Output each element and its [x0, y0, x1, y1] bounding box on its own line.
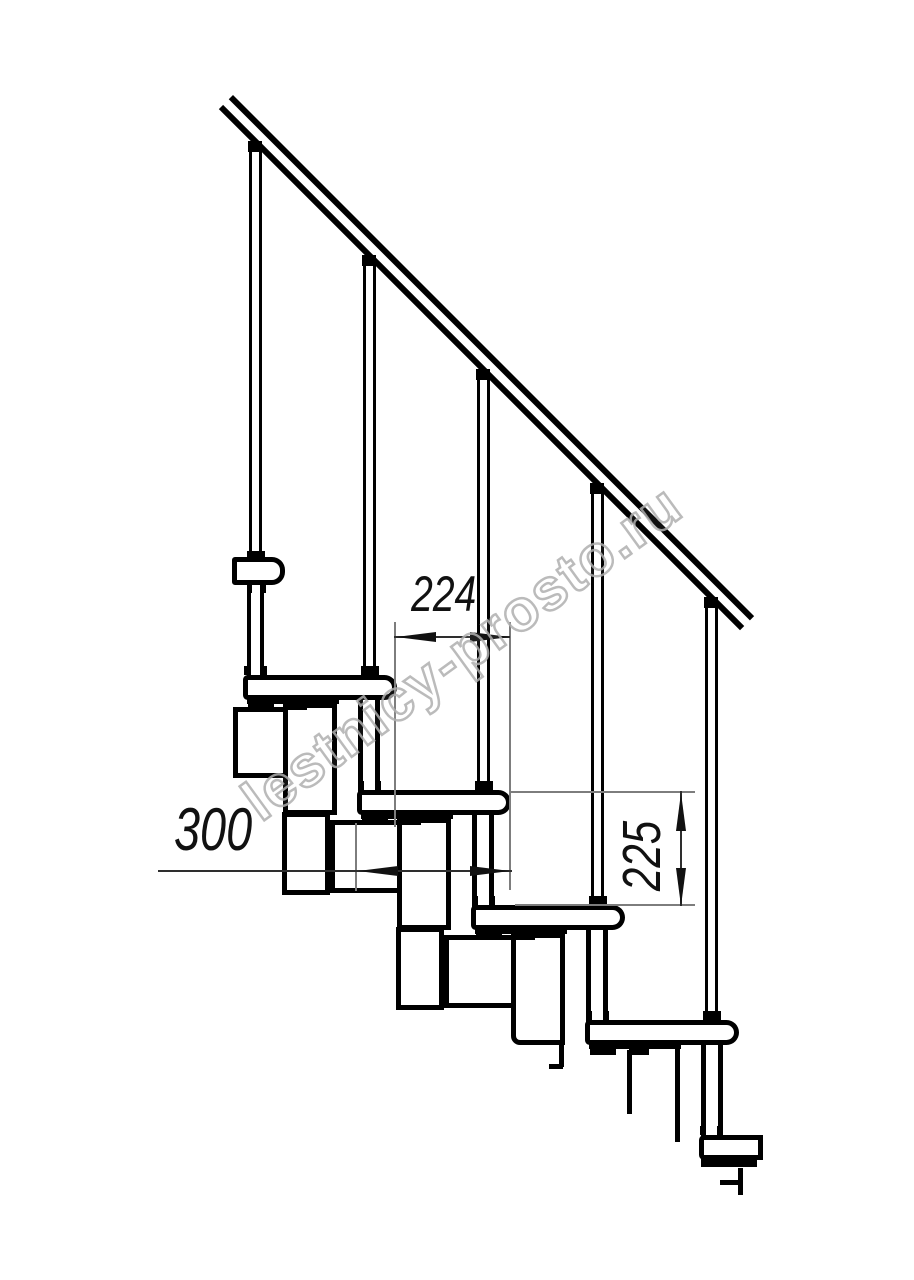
- module-cut-line: [549, 1064, 563, 1069]
- dimension-arrow-right: [470, 866, 510, 876]
- module-box: [511, 933, 565, 1045]
- baluster-cap: [476, 369, 490, 380]
- tread-mount: [590, 1049, 616, 1055]
- baluster-foot: [244, 666, 250, 675]
- baluster-foot: [717, 1126, 723, 1135]
- baluster-foot: [603, 1011, 609, 1020]
- technical-drawing: 224 300 225 lestnicy-prosto.ru: [0, 0, 914, 1280]
- tread-underside: [701, 1158, 757, 1167]
- extension-line: [355, 823, 357, 891]
- dimension-label-step-rise: 225: [614, 796, 670, 916]
- module-box: [330, 820, 403, 893]
- baluster-cap: [248, 141, 262, 152]
- baluster-foot: [586, 1011, 592, 1020]
- module-cut-line: [675, 1043, 680, 1142]
- baluster-lower-tube: [247, 583, 264, 677]
- baluster: [363, 264, 376, 677]
- tread-mount: [248, 704, 274, 710]
- baluster-collar: [475, 781, 493, 790]
- baluster-foot: [247, 585, 252, 593]
- tread-mount: [362, 819, 388, 825]
- tread-underside: [361, 812, 453, 819]
- module-cut-line: [627, 1050, 632, 1114]
- baluster-cap: [362, 255, 376, 266]
- baluster: [249, 150, 262, 560]
- module-box: [444, 935, 517, 1008]
- baluster-lower-tube: [586, 930, 608, 1022]
- dimension-arrow-left: [358, 866, 398, 876]
- baluster-foot: [261, 666, 267, 675]
- tread: [699, 1135, 763, 1160]
- baluster-foot: [472, 896, 478, 905]
- baluster-lower-tube: [701, 1045, 723, 1137]
- dimension-arrow-down: [676, 868, 686, 906]
- dimension-line: [158, 870, 512, 872]
- module-cut-line: [738, 1183, 743, 1195]
- baluster-foot: [700, 1126, 706, 1135]
- extension-line: [509, 791, 695, 793]
- tread-mount: [401, 819, 421, 825]
- baluster-lower-tube: [472, 815, 494, 907]
- baluster-foot: [261, 585, 266, 593]
- dimension-arrow-up: [676, 793, 686, 831]
- tread-underside: [589, 1042, 681, 1049]
- tread-mount: [515, 934, 535, 940]
- baluster-collar: [703, 1011, 721, 1020]
- dimension-value: 225: [611, 821, 673, 891]
- tread-mount: [629, 1049, 649, 1055]
- baluster-foot: [489, 896, 495, 905]
- module-box: [396, 927, 444, 1010]
- module-box: [397, 818, 451, 930]
- tread-underside: [475, 927, 567, 934]
- baluster-collar: [247, 551, 265, 560]
- baluster: [705, 606, 718, 1022]
- baluster-cap: [704, 597, 718, 608]
- tread: [232, 557, 285, 585]
- tread-mount: [476, 934, 502, 940]
